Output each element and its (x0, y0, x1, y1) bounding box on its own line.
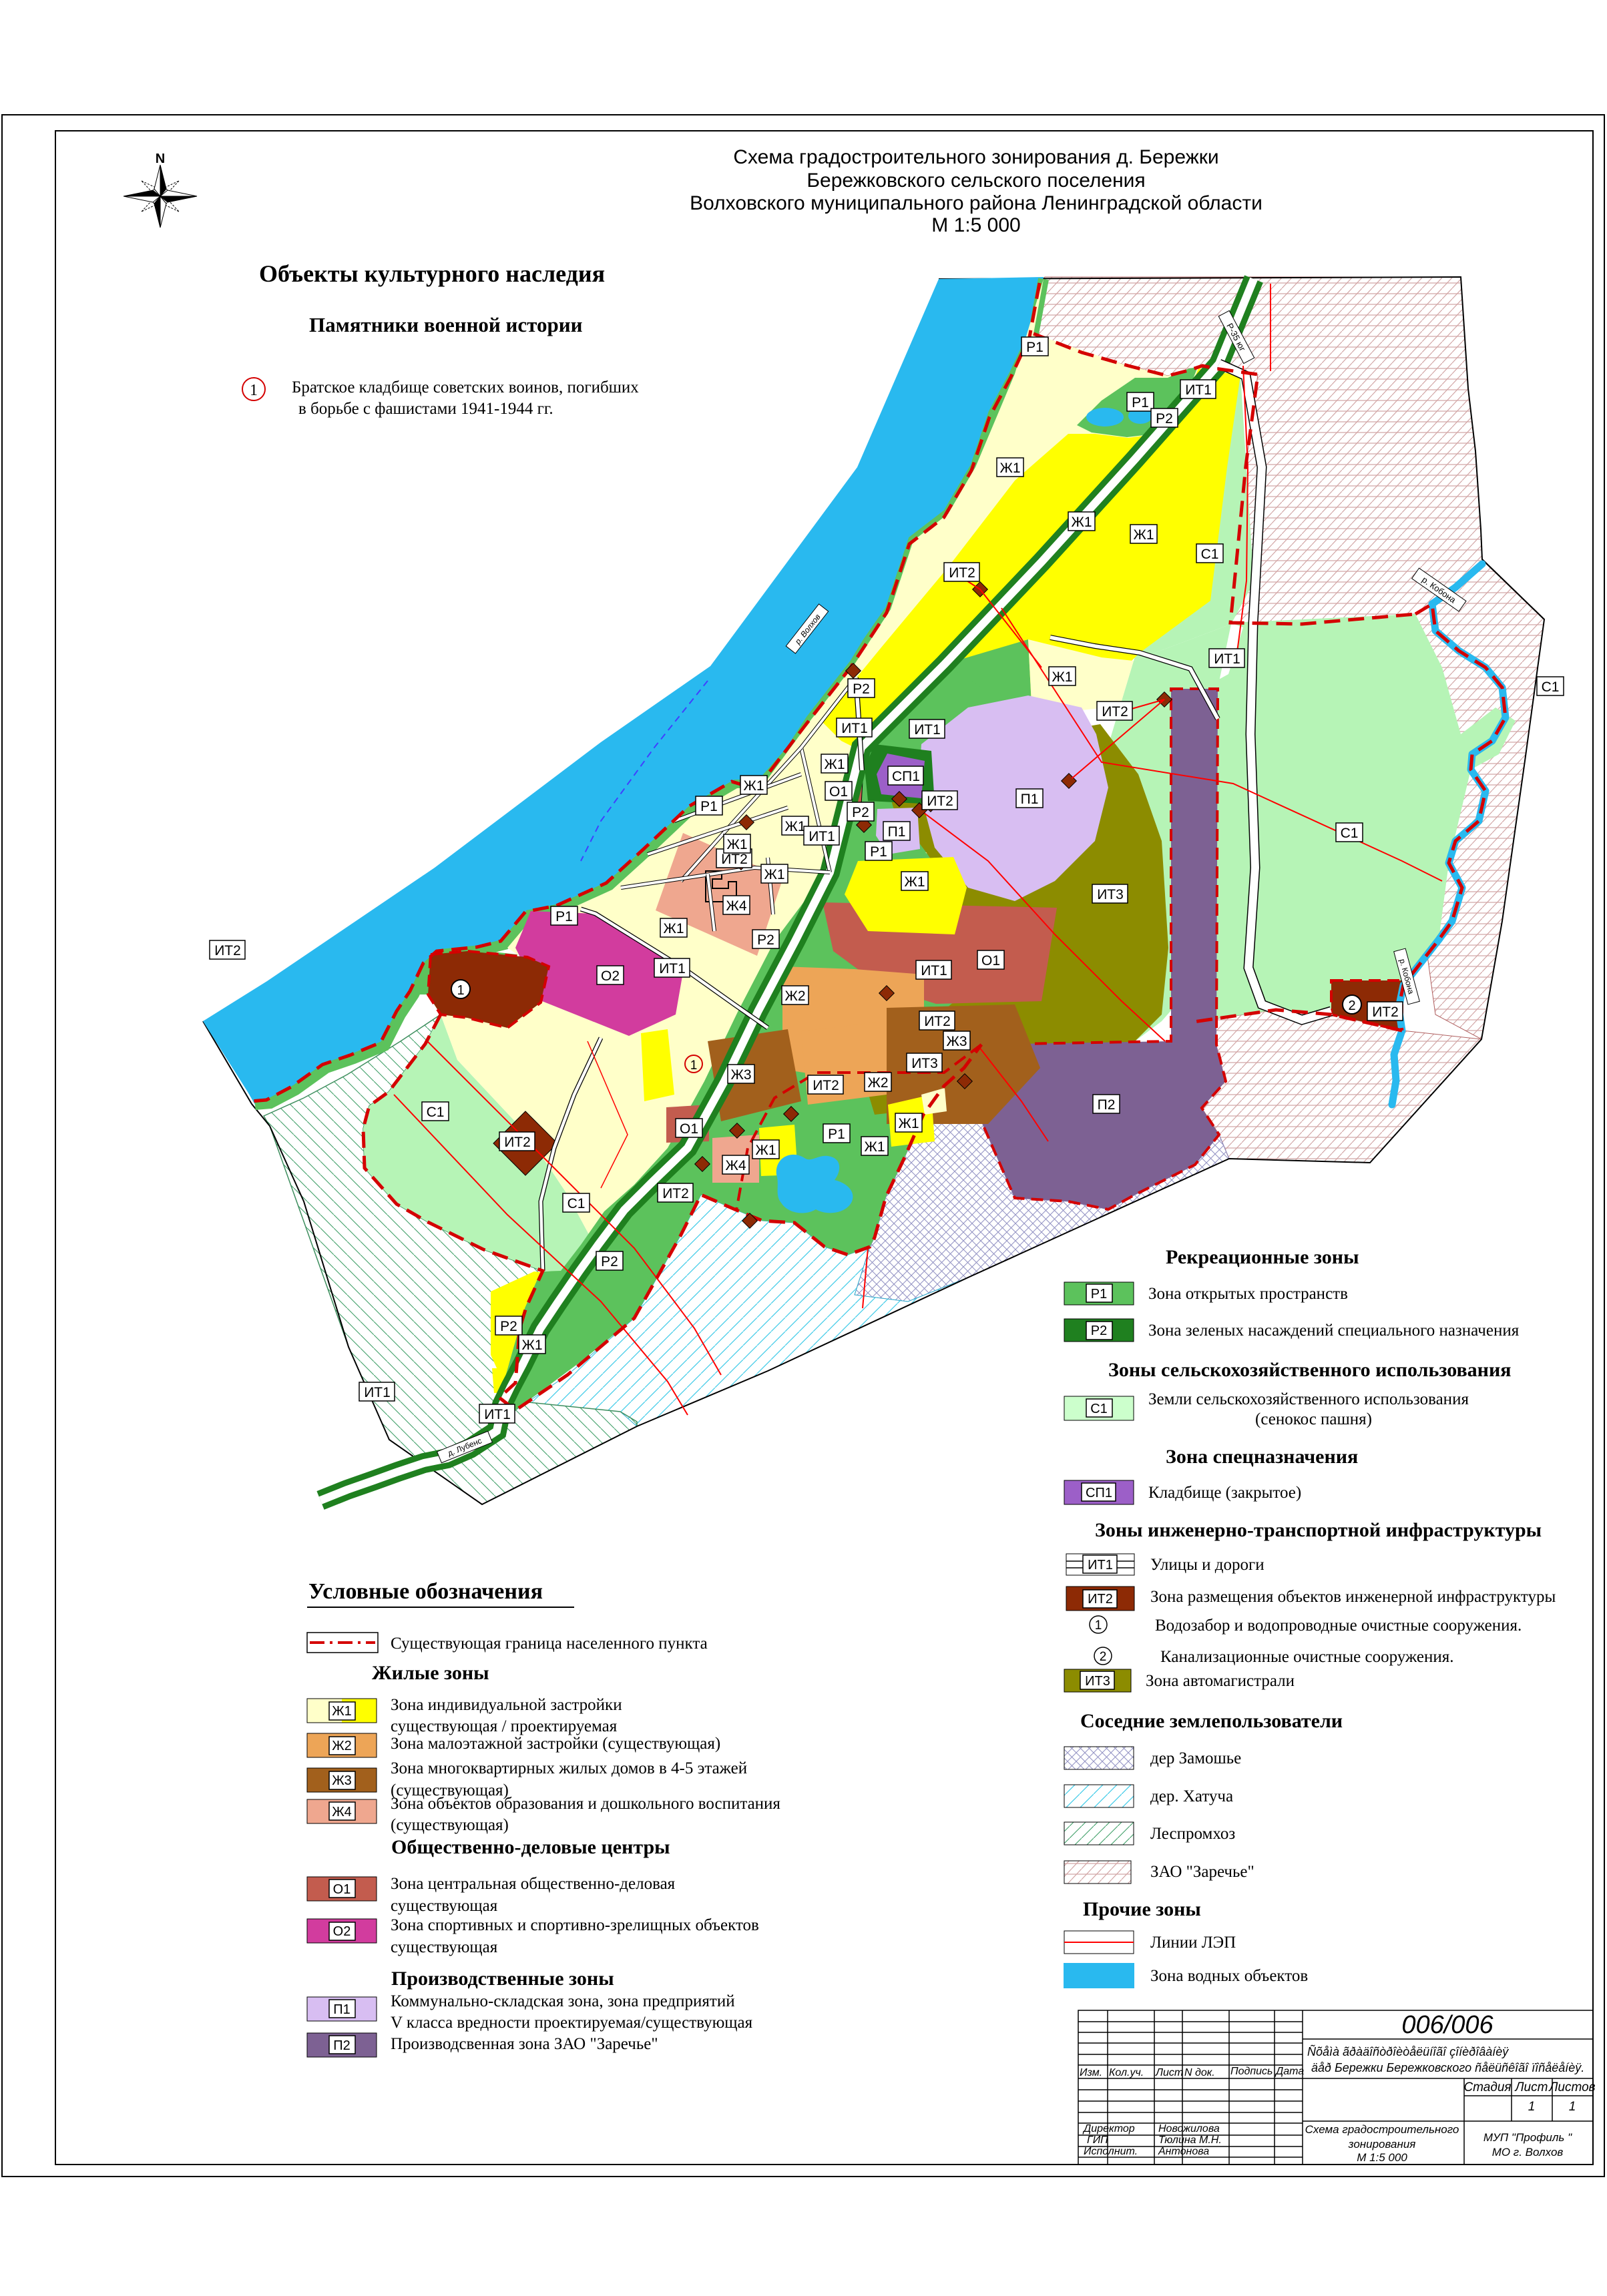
svg-text:ИТ3: ИТ3 (911, 1056, 938, 1071)
svg-text:С1: С1 (427, 1105, 445, 1120)
svg-text:М 1:5 000: М 1:5 000 (931, 214, 1020, 236)
svg-text:Улицы и дороги: Улицы и дороги (1150, 1556, 1265, 1574)
svg-text:Ж4: Ж4 (725, 1158, 746, 1173)
svg-text:Ж1: Ж1 (999, 461, 1020, 476)
svg-text:Зона объектов образования и до: Зона объектов образования и дошкольного … (391, 1795, 780, 1813)
svg-text:дер Замошье: дер Замошье (1150, 1749, 1241, 1767)
svg-text:Ж1: Ж1 (864, 1139, 885, 1155)
svg-text:Р1: Р1 (700, 799, 718, 814)
svg-text:Соседние землепользователи: Соседние землепользователи (1080, 1710, 1343, 1732)
svg-text:С1: С1 (567, 1196, 586, 1211)
svg-text:1: 1 (457, 983, 464, 998)
svg-text:006/006: 006/006 (1401, 2011, 1494, 2039)
svg-text:Р2: Р2 (852, 805, 869, 820)
svg-text:С1: С1 (1090, 1402, 1108, 1416)
svg-text:N: N (156, 152, 165, 166)
svg-text:Прочие зоны: Прочие зоны (1083, 1898, 1201, 1920)
svg-text:ИТ3: ИТ3 (1097, 887, 1124, 902)
svg-text:2: 2 (1100, 1650, 1107, 1664)
svg-text:С1: С1 (1542, 679, 1560, 695)
svg-text:Р1: Р1 (1132, 395, 1149, 410)
svg-text:Зона индивидуальной застройки: Зона индивидуальной застройки (391, 1696, 622, 1714)
svg-text:ИТ2: ИТ2 (1102, 704, 1128, 720)
svg-text:Ж3: Ж3 (332, 1773, 352, 1788)
svg-text:Кладбище (закрытое): Кладбище (закрытое) (1148, 1484, 1301, 1502)
svg-text:ИТ2: ИТ2 (504, 1135, 531, 1150)
svg-text:Ж2: Ж2 (867, 1075, 888, 1091)
svg-text:ИТ1: ИТ1 (809, 829, 835, 844)
svg-text:Зона автомагистрали: Зона автомагистрали (1146, 1672, 1295, 1690)
svg-text:Ж1: Ж1 (898, 1116, 919, 1131)
svg-text:ИТ1: ИТ1 (921, 963, 947, 978)
svg-text:Р1: Р1 (828, 1127, 845, 1142)
svg-text:Кол.уч.: Кол.уч. (1109, 2067, 1144, 2078)
svg-text:Земли сельскохозяйственного ис: Земли сельскохозяйственного использовани… (1148, 1390, 1469, 1408)
svg-text:Объекты культурного наследия: Объекты культурного наследия (259, 260, 605, 287)
svg-text:Существующая граница населенн: Существующая граница населенного пункта (391, 1635, 708, 1653)
svg-text:Ж3: Ж3 (730, 1067, 751, 1083)
svg-text:Листов: Листов (1548, 2080, 1595, 2094)
svg-text:Канализационные очистные соор: Канализационные очистные сооружения. (1160, 1648, 1453, 1666)
svg-text:Антонова: Антонова (1158, 2146, 1209, 2157)
svg-text:Ж4: Ж4 (726, 898, 746, 914)
svg-text:СП1: СП1 (1086, 1486, 1112, 1500)
svg-text:Условные обозначения: Условные обозначения (308, 1579, 543, 1604)
svg-text:Ж1: Ж1 (784, 819, 805, 834)
svg-text:(сенокос пашня): (сенокос пашня) (1255, 1410, 1372, 1428)
svg-text:Производственные зоны: Производственные зоны (391, 1968, 614, 1990)
svg-text:Р1: Р1 (1091, 1287, 1107, 1302)
svg-text:Р2: Р2 (500, 1319, 517, 1334)
svg-text:П2: П2 (333, 2038, 351, 2053)
svg-text:Ж3: Ж3 (946, 1034, 967, 1049)
svg-text:ИТ1: ИТ1 (659, 961, 686, 976)
svg-text:Зона зеленых насаждений специа: Зона зеленых насаждений специального наз… (1148, 1322, 1520, 1340)
svg-text:(существующая): (существующая) (391, 1816, 509, 1834)
svg-text:О1: О1 (981, 953, 1000, 968)
svg-text:ИТ2: ИТ2 (721, 852, 748, 867)
svg-text:Зоны инженерно-транспортной ин: Зоны инженерно-транспортной инфраструкту… (1095, 1519, 1542, 1541)
svg-text:ИТ2: ИТ2 (1372, 1005, 1399, 1020)
svg-text:ИТ2: ИТ2 (1088, 1592, 1113, 1607)
svg-text:Ж1: Ж1 (1133, 527, 1154, 543)
svg-text:Ж1: Ж1 (743, 778, 764, 794)
svg-text:Общественно-деловые центры: Общественно-деловые центры (391, 1836, 670, 1858)
svg-text:Линии ЛЭП: Линии ЛЭП (1150, 1934, 1236, 1952)
svg-text:МО г. Волхов: МО г. Волхов (1492, 2146, 1564, 2159)
svg-text:ГИП: ГИП (1087, 2134, 1108, 2146)
svg-text:Дата: Дата (1275, 2066, 1304, 2077)
svg-text:ИТ1: ИТ1 (1185, 382, 1212, 398)
svg-text:Ж1: Ж1 (332, 1704, 352, 1719)
svg-text:существующая / проектируемая: существующая / проектируемая (391, 1717, 618, 1735)
svg-text:П2: П2 (1098, 1097, 1116, 1113)
svg-text:ИТ1: ИТ1 (841, 721, 868, 736)
svg-text:Лист: Лист (1155, 2067, 1183, 2078)
svg-text:П1: П1 (333, 2002, 351, 2017)
svg-text:существующая: существующая (391, 1938, 498, 1956)
svg-text:Ж1: Ж1 (1052, 669, 1072, 685)
svg-text:Зона спецназначения: Зона спецназначения (1166, 1446, 1358, 1468)
svg-text:Жилые зоны: Жилые зоны (372, 1662, 489, 1684)
svg-text:Ж1: Ж1 (904, 874, 925, 890)
svg-text:Р1: Р1 (555, 909, 573, 924)
svg-text:ИТ1: ИТ1 (364, 1385, 391, 1400)
svg-text:N док.: N док. (1184, 2067, 1215, 2078)
svg-text:дер. Хатуча: дер. Хатуча (1150, 1787, 1233, 1805)
svg-text:Р1: Р1 (870, 844, 887, 860)
svg-text:1: 1 (690, 1059, 698, 1073)
svg-text:Ж2: Ж2 (332, 1739, 352, 1753)
svg-text:ИТ1: ИТ1 (1088, 1558, 1113, 1572)
svg-text:Зоны сельскохозяйственного исп: Зоны сельскохозяйственного использования (1108, 1359, 1511, 1381)
svg-text:Изм.: Изм. (1080, 2067, 1102, 2078)
svg-text:Исполнит.: Исполнит. (1084, 2146, 1138, 2157)
svg-text:Схема градостроительного зонир: Схема градостроительного зонирования д. … (733, 146, 1218, 168)
svg-text:1: 1 (1528, 2100, 1536, 2114)
svg-text:Зона малоэтажной застройки (с: Зона малоэтажной застройки (существующая… (391, 1735, 720, 1753)
svg-text:Производсвенная зона ЗАО "Зар: Производсвенная зона ЗАО "Заречье" (391, 2035, 658, 2053)
svg-text:Ж1: Ж1 (521, 1338, 542, 1353)
svg-text:äåð Бережки Бережковского ñå: äåð Бережки Бережковского ñåëüñêîãî ïîñå… (1311, 2061, 1584, 2074)
svg-text:Зона размещения объектов инжен: Зона размещения объектов инженерной инфр… (1150, 1588, 1556, 1606)
svg-text:ИТ1: ИТ1 (1214, 651, 1240, 667)
svg-text:Ж1: Ж1 (726, 837, 747, 852)
svg-text:П1: П1 (1021, 792, 1039, 807)
svg-text:Зона открытых пространств: Зона открытых пространств (1148, 1285, 1348, 1303)
svg-text:ИТ2: ИТ2 (949, 565, 975, 581)
svg-text:Подпись: Подпись (1230, 2066, 1273, 2077)
svg-text:О1: О1 (829, 784, 848, 800)
svg-text:ИТ2: ИТ2 (813, 1078, 839, 1093)
svg-text:О1: О1 (333, 1882, 351, 1897)
svg-text:Зона водных объектов: Зона водных объектов (1150, 1967, 1308, 1985)
svg-text:О1: О1 (680, 1121, 698, 1137)
svg-text:Ж1: Ж1 (1071, 515, 1092, 530)
svg-text:Памятники военной истории: Памятники военной истории (309, 313, 583, 336)
svg-text:ЗАО "Заречье": ЗАО "Заречье" (1150, 1863, 1254, 1881)
svg-text:Схема градостроительного: Схема градостроительного (1305, 2123, 1459, 2136)
svg-text:1: 1 (1095, 1619, 1102, 1633)
svg-text:ИТ1: ИТ1 (484, 1407, 511, 1422)
svg-text:Р2: Р2 (601, 1254, 618, 1269)
svg-text:Директор: Директор (1082, 2123, 1135, 2134)
svg-text:Ж1: Ж1 (824, 757, 845, 772)
svg-text:ИТ2: ИТ2 (214, 943, 241, 958)
svg-text:Р2: Р2 (853, 681, 870, 697)
svg-text:1: 1 (1569, 2100, 1576, 2114)
svg-text:существующая: существующая (391, 1897, 498, 1915)
svg-text:2: 2 (1348, 998, 1355, 1013)
svg-text:Рекреационные зоны: Рекреационные зоны (1166, 1246, 1359, 1268)
svg-text:Р1: Р1 (1026, 340, 1044, 355)
svg-text:Зона центральная общественно-: Зона центральная общественно-деловая (391, 1875, 676, 1893)
svg-text:Ж1: Ж1 (663, 921, 684, 936)
svg-text:Ж1: Ж1 (755, 1143, 776, 1158)
svg-text:П1: П1 (888, 824, 906, 840)
svg-text:Бережковского сельского посел: Бережковского сельского поселения (807, 170, 1145, 192)
svg-text:С1: С1 (1201, 547, 1219, 562)
svg-text:М 1:5 000: М 1:5 000 (1357, 2151, 1407, 2164)
svg-text:в борьбе с фашистами 1941-194: в борьбе с фашистами 1941-1944 гг. (298, 400, 553, 418)
svg-text:Стадия: Стадия (1463, 2080, 1511, 2094)
svg-text:ИТ2: ИТ2 (927, 794, 953, 809)
svg-text:Р2: Р2 (1156, 411, 1173, 426)
svg-text:Лист: Лист (1514, 2080, 1548, 2094)
svg-text:Волховского муниципального рай: Волховского муниципального района Ленинг… (690, 192, 1262, 214)
svg-text:Зона многоквартирных жилых дом: Зона многоквартирных жилых домов в 4-5 э… (391, 1759, 747, 1777)
svg-text:Ж2: Ж2 (784, 988, 805, 1004)
svg-text:ИТ2: ИТ2 (924, 1014, 951, 1029)
svg-text:О2: О2 (333, 1924, 351, 1939)
svg-text:Ñõåìà ãðàäîñòðîèòåëüíîãî çîíèð: Ñõåìà ãðàäîñòðîèòåëüíîãî çîíèðîâàíèÿ (1307, 2044, 1509, 2058)
svg-text:зонирования: зонирования (1348, 2138, 1416, 2150)
svg-text:ИТ3: ИТ3 (1085, 1674, 1110, 1689)
svg-text:Ж4: Ж4 (332, 1805, 352, 1819)
svg-text:О2: О2 (601, 968, 620, 984)
svg-text:Новожилова: Новожилова (1158, 2123, 1220, 2134)
svg-text:МУП "Профиль ": МУП "Профиль " (1483, 2131, 1572, 2144)
svg-text:ИТ2: ИТ2 (662, 1186, 689, 1201)
svg-text:СП1: СП1 (892, 769, 920, 784)
svg-text:ИТ1: ИТ1 (914, 722, 941, 738)
svg-text:Коммунально-складская зона, зо: Коммунально-складская зона, зона предпри… (391, 1992, 735, 2010)
svg-text:Ж1: Ж1 (764, 867, 784, 882)
svg-text:Братское кладбище советских во: Братское кладбище советских воинов, поги… (292, 378, 639, 396)
svg-text:Р2: Р2 (1091, 1324, 1107, 1338)
svg-text:Водозабор и водопроводные очис: Водозабор и водопроводные очистные соору… (1155, 1617, 1522, 1635)
svg-text:Р2: Р2 (757, 932, 774, 948)
svg-text:1: 1 (250, 382, 258, 399)
svg-text:V класса вредности проектируем: V класса вредности проектируемая/существ… (391, 2014, 753, 2032)
svg-text:Леспромхоз: Леспромхоз (1150, 1825, 1235, 1843)
svg-text:Тюлина М.Н.: Тюлина М.Н. (1158, 2134, 1222, 2146)
svg-text:Зона спортивных и спортивно-зр: Зона спортивных и спортивно-зрелищных об… (391, 1916, 759, 1934)
svg-text:С1: С1 (1341, 826, 1359, 841)
